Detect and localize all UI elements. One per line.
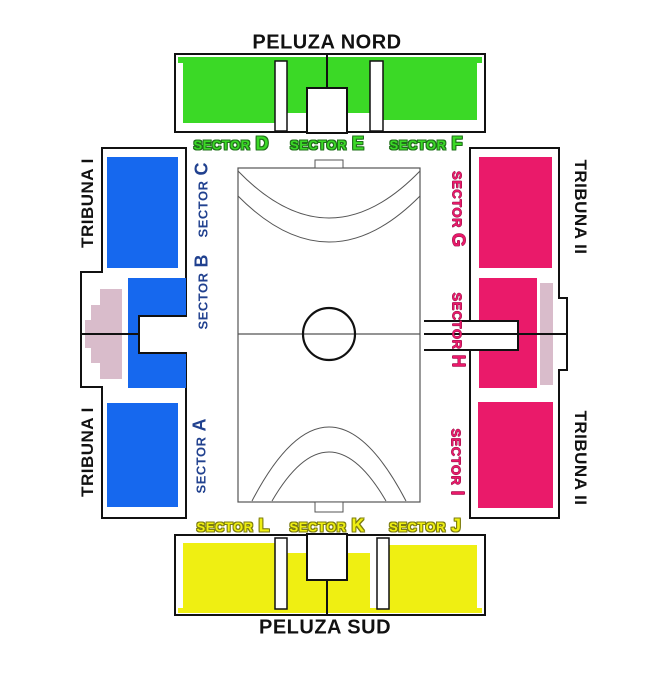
north-aisle-left [275,61,287,131]
sector-f-label: SECTOR F [390,134,463,155]
sector-k-label: SECTOR K [290,516,365,537]
sector-a-label: SECTOR A [190,419,211,494]
west-stand-title-upper: TRIBUNA I [78,158,98,248]
sector-d-label: SECTOR D [194,134,269,155]
north-stand [175,54,485,133]
stadium-seating-map: PELUZA NORD PELUZA SUD TRIBUNA I TRIBUNA… [0,0,654,675]
north-aisle-right [370,61,383,131]
court [238,160,420,512]
sector-j-label: SECTOR J [389,516,461,537]
north-stand-title: PELUZA NORD [252,32,401,55]
sector-e-label: SECTOR E [290,134,364,155]
sector-j-block[interactable] [388,545,477,609]
stadium-shapes [0,0,654,675]
south-tunnel [307,534,347,580]
sector-l-label: SECTOR L [197,516,270,537]
south-aisle-left [275,538,287,609]
east-stand-title-lower: TRIBUNA II [570,410,590,505]
east-stand-title-upper: TRIBUNA II [570,159,590,254]
goal-south [315,502,343,512]
east-tunnel-fill [424,322,518,349]
sector-g-label: SECTOR G [448,171,469,247]
sector-l-block[interactable] [183,543,275,609]
sector-i-label: SECTOR I [447,429,468,496]
sector-h-label: SECTOR H [448,293,469,368]
sector-a-block[interactable] [107,403,178,507]
south-aisle-right [377,538,389,609]
sector-d-block[interactable] [183,57,275,123]
sector-b-label: SECTOR B [192,255,213,330]
sector-g-block[interactable] [479,157,552,268]
east-stand [424,148,567,518]
north-tunnel [307,88,347,133]
sector-i-block[interactable] [478,402,553,508]
sector-c-label: SECTOR C [192,163,213,238]
sector-c-block[interactable] [107,157,178,268]
south-stand [175,534,485,615]
west-stand-title-lower: TRIBUNA I [78,407,98,497]
sector-f-block[interactable] [383,57,477,120]
goal-north [315,160,343,168]
south-stand-title: PELUZA SUD [259,617,391,640]
west-tunnel-fill [139,317,187,352]
